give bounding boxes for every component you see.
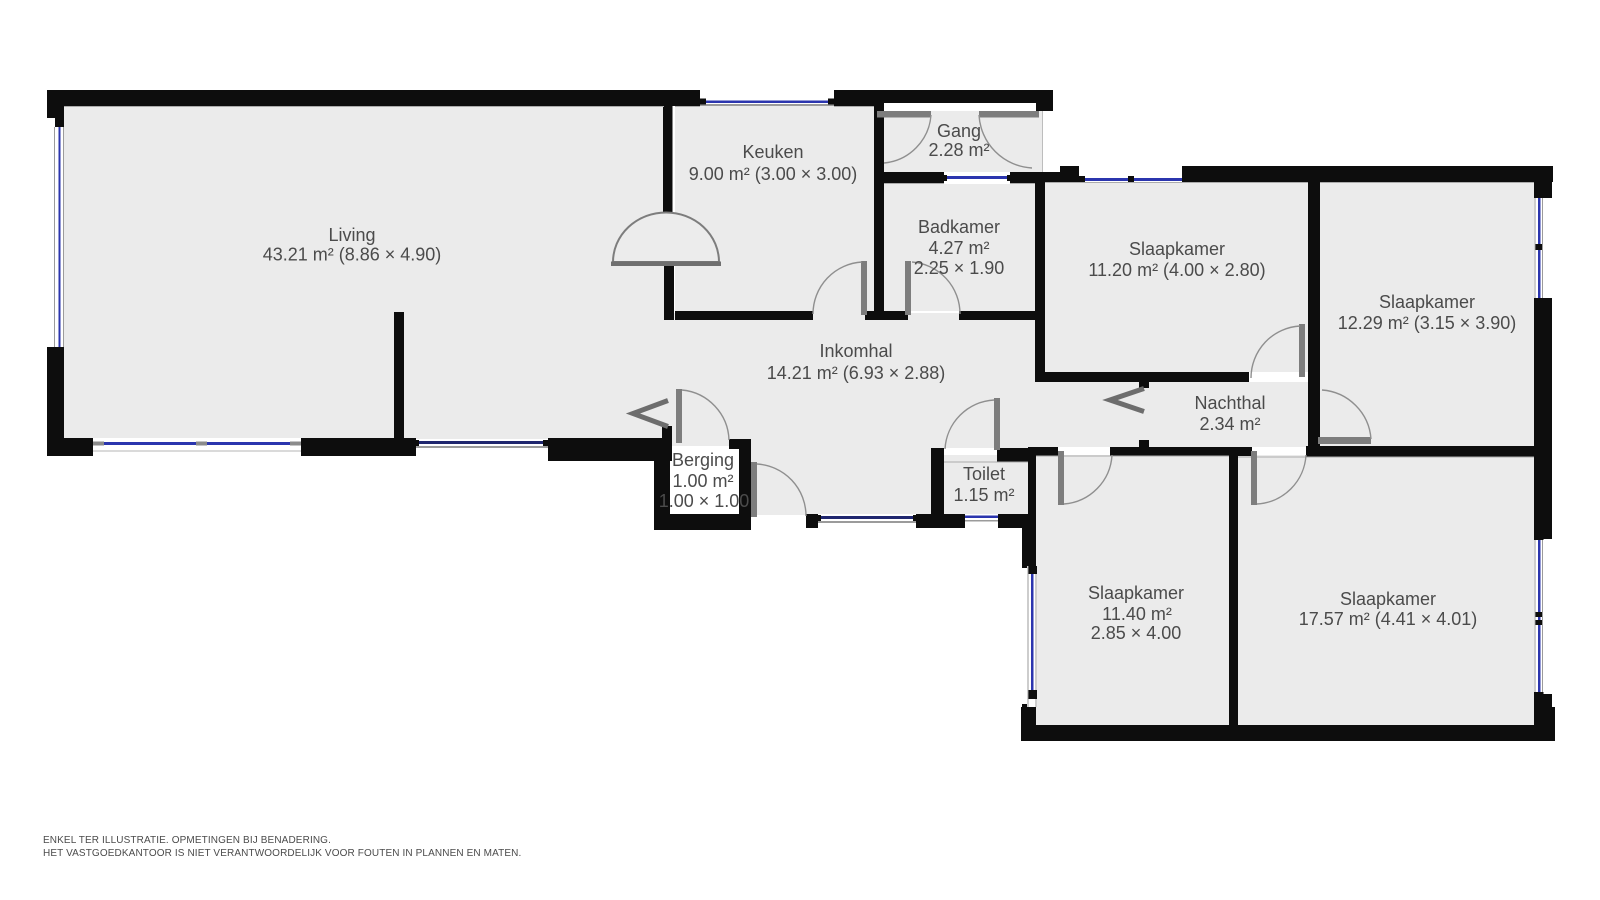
svg-text:Badkamer: Badkamer bbox=[918, 217, 1000, 237]
svg-text:2.34 m²: 2.34 m² bbox=[1199, 414, 1260, 434]
svg-text:2.25 × 1.90: 2.25 × 1.90 bbox=[914, 258, 1005, 278]
svg-text:43.21 m² (8.86 × 4.90): 43.21 m² (8.86 × 4.90) bbox=[263, 245, 442, 265]
svg-text:HET VASTGOEDKANTOOR IS NIET VE: HET VASTGOEDKANTOOR IS NIET VERANTWOORDE… bbox=[43, 848, 521, 859]
svg-text:Berging: Berging bbox=[672, 450, 734, 470]
svg-text:Slaapkamer: Slaapkamer bbox=[1340, 589, 1436, 609]
svg-text:11.20 m² (4.00 × 2.80): 11.20 m² (4.00 × 2.80) bbox=[1088, 260, 1265, 280]
svg-text:Slaapkamer: Slaapkamer bbox=[1379, 292, 1475, 312]
svg-text:Nachthal: Nachthal bbox=[1194, 393, 1265, 413]
svg-text:Inkomhal: Inkomhal bbox=[819, 341, 892, 361]
svg-text:2.28 m²: 2.28 m² bbox=[928, 140, 989, 160]
svg-text:2.85 × 4.00: 2.85 × 4.00 bbox=[1091, 623, 1182, 643]
svg-text:Gang: Gang bbox=[937, 121, 981, 141]
svg-text:Living: Living bbox=[328, 225, 375, 245]
svg-text:ENKEL TER ILLUSTRATIE. OPMETIN: ENKEL TER ILLUSTRATIE. OPMETINGEN BIJ BE… bbox=[43, 835, 331, 846]
svg-text:17.57 m² (4.41 × 4.01): 17.57 m² (4.41 × 4.01) bbox=[1299, 609, 1478, 629]
svg-text:9.00 m² (3.00 × 3.00): 9.00 m² (3.00 × 3.00) bbox=[689, 164, 858, 184]
svg-text:Keuken: Keuken bbox=[742, 142, 803, 162]
svg-text:Slaapkamer: Slaapkamer bbox=[1129, 239, 1225, 259]
svg-text:1.00 m²: 1.00 m² bbox=[672, 471, 733, 491]
svg-text:1.00 × 1.00: 1.00 × 1.00 bbox=[659, 491, 750, 511]
svg-text:Slaapkamer: Slaapkamer bbox=[1088, 583, 1184, 603]
svg-text:12.29 m² (3.15 × 3.90): 12.29 m² (3.15 × 3.90) bbox=[1338, 313, 1517, 333]
svg-text:4.27 m²: 4.27 m² bbox=[928, 238, 989, 258]
svg-text:11.40 m²: 11.40 m² bbox=[1102, 604, 1172, 624]
svg-text:14.21 m² (6.93 × 2.88): 14.21 m² (6.93 × 2.88) bbox=[767, 363, 946, 383]
svg-text:Toilet: Toilet bbox=[963, 464, 1005, 484]
svg-text:1.15 m²: 1.15 m² bbox=[953, 485, 1014, 505]
